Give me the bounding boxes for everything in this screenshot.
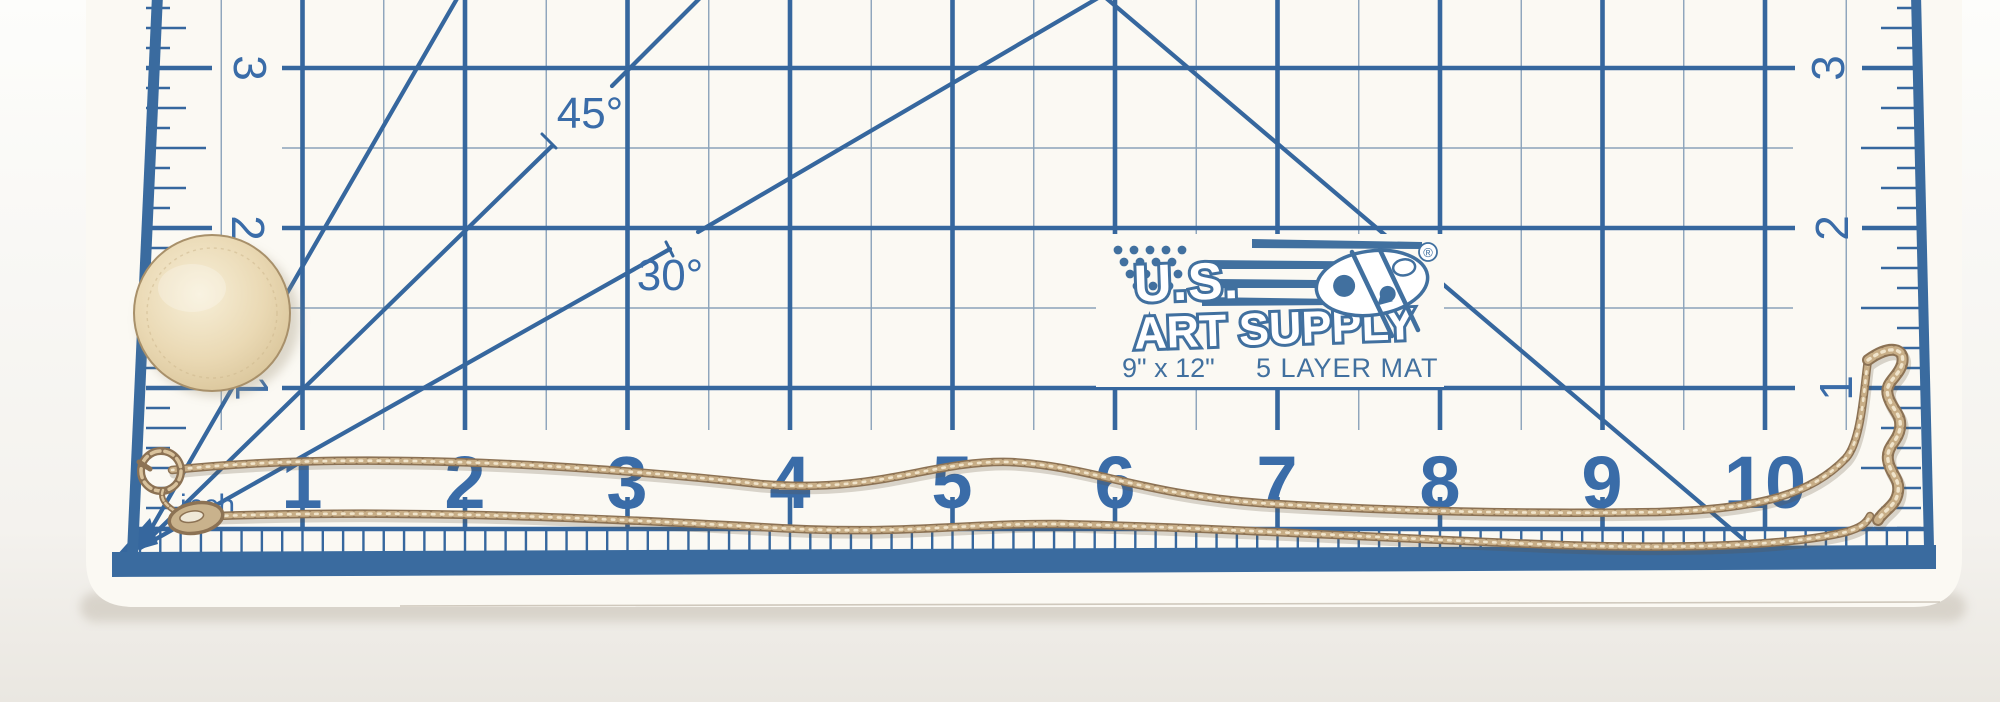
coin-face	[134, 235, 290, 391]
photo-cutting-mat-scene: 45° 30° 1 2 3 4 5 6 7 8 9 10 3 2 1 3 2 1…	[0, 0, 2000, 702]
ruler-number-5: 5	[931, 441, 972, 524]
logo-size-text: 9" x 12"	[1122, 353, 1215, 383]
angle-label-30: 30°	[637, 251, 704, 300]
right-ruler-number-2: 2	[1806, 215, 1858, 241]
right-ruler-number-1: 1	[1810, 375, 1862, 401]
ruler-number-3: 3	[606, 441, 647, 524]
registered-mark-text: ®	[1423, 245, 1433, 260]
left-ruler-number-3: 3	[224, 55, 276, 81]
scene-canvas: 45° 30° 1 2 3 4 5 6 7 8 9 10 3 2 1 3 2 1…	[0, 0, 2000, 702]
coin-glare	[158, 264, 226, 312]
angle-label-45: 45°	[557, 89, 624, 138]
logo-layer-text: 5 LAYER MAT	[1256, 353, 1439, 383]
us-art-supply-logo: U.S. ART SUPPLY ® 9" x 12" 5 LAYER MAT	[1096, 234, 1444, 387]
registered-trademark-icon: ®	[1419, 243, 1437, 261]
right-ruler-number-3: 3	[1802, 55, 1854, 81]
